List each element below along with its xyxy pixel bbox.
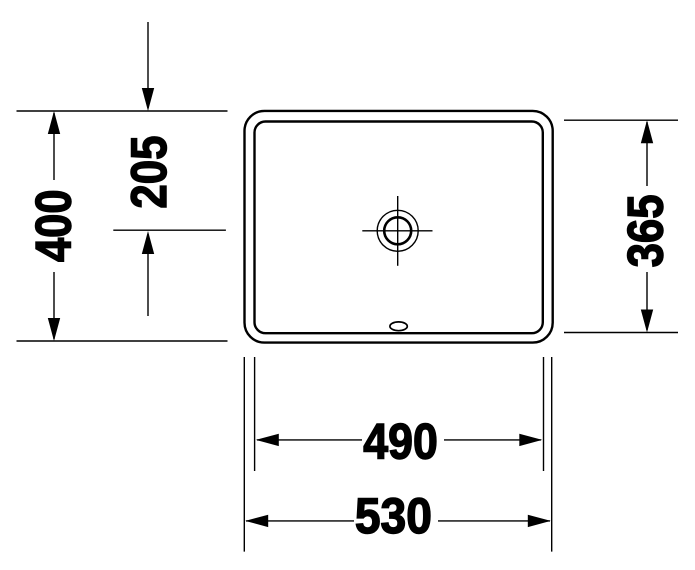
svg-text:365: 365 [616, 194, 673, 267]
svg-text:205: 205 [120, 136, 177, 209]
svg-text:400: 400 [25, 190, 82, 263]
svg-text:490: 490 [363, 412, 438, 469]
svg-text:530: 530 [355, 487, 432, 544]
